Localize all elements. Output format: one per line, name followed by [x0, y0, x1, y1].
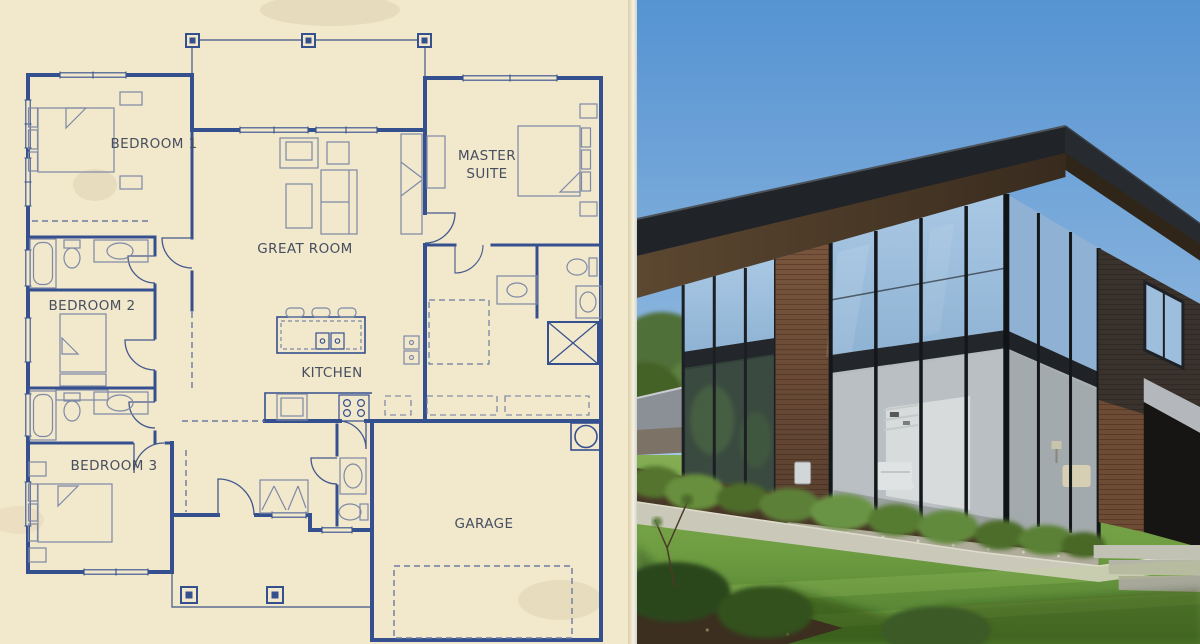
left-wood-column	[775, 243, 830, 508]
room-label-garage: GARAGE	[455, 516, 514, 532]
house-photo-panel	[637, 0, 1200, 644]
corner-glass-right-face	[1006, 194, 1098, 548]
paper-texture	[0, 0, 635, 644]
room-label-bedroom-3: BEDROOM 3	[71, 458, 158, 474]
house-photo	[637, 0, 1200, 644]
corner-glass-left-face	[826, 194, 1007, 540]
floor-plan-panel: BEDROOM 1 GREAT ROOM MASTER SUITE BEDROO…	[0, 0, 635, 644]
panel-divider	[628, 0, 637, 644]
room-label-bedroom-2: BEDROOM 2	[49, 298, 136, 314]
room-label-master-line1: MASTER	[458, 148, 516, 164]
left-glass-wall	[683, 259, 775, 505]
room-label-kitchen: KITCHEN	[301, 365, 362, 381]
screenshot-root: BEDROOM 1 GREAT ROOM MASTER SUITE BEDROO…	[0, 0, 1200, 644]
room-label-master-line2: SUITE	[466, 166, 507, 182]
room-label-bedroom-1: BEDROOM 1	[111, 136, 198, 152]
room-label-great-room: GREAT ROOM	[257, 241, 352, 257]
utility-box	[795, 462, 811, 484]
floor-plan-drawing: BEDROOM 1 GREAT ROOM MASTER SUITE BEDROO…	[0, 0, 635, 644]
